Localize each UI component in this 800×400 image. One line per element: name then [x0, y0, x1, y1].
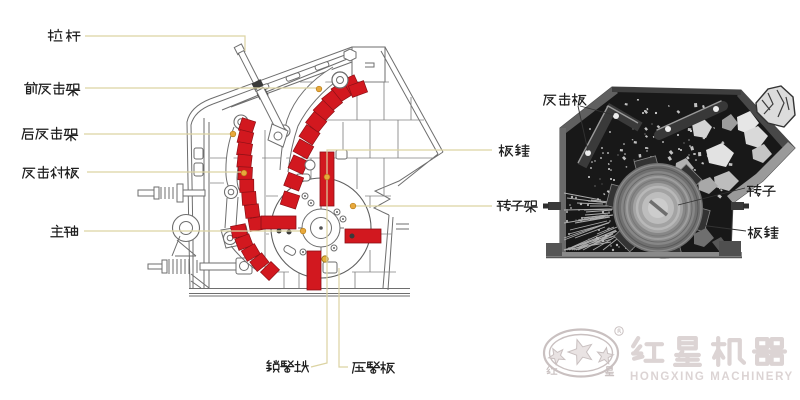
svg-text:HONGXING MACHINERY: HONGXING MACHINERY [630, 371, 794, 383]
